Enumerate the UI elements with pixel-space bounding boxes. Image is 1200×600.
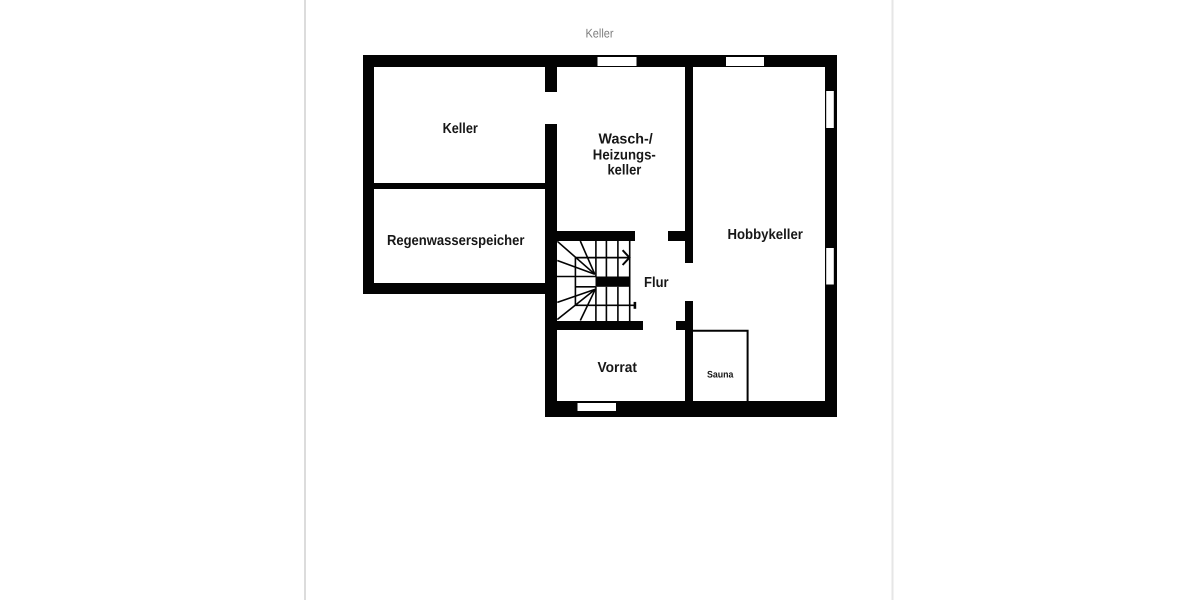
- svg-text:Regenwasserspeicher: Regenwasserspeicher: [387, 233, 525, 249]
- svg-text:Sauna: Sauna: [707, 370, 734, 381]
- svg-text:Heizungs-: Heizungs-: [593, 147, 656, 163]
- svg-text:Keller: Keller: [585, 27, 613, 41]
- svg-text:Vorrat: Vorrat: [598, 360, 638, 376]
- svg-text:Hobbykeller: Hobbykeller: [728, 227, 804, 243]
- svg-text:Wasch-/: Wasch-/: [599, 132, 653, 148]
- svg-text:Flur: Flur: [644, 275, 669, 291]
- svg-text:Keller: Keller: [443, 121, 479, 137]
- svg-text:keller: keller: [607, 163, 641, 179]
